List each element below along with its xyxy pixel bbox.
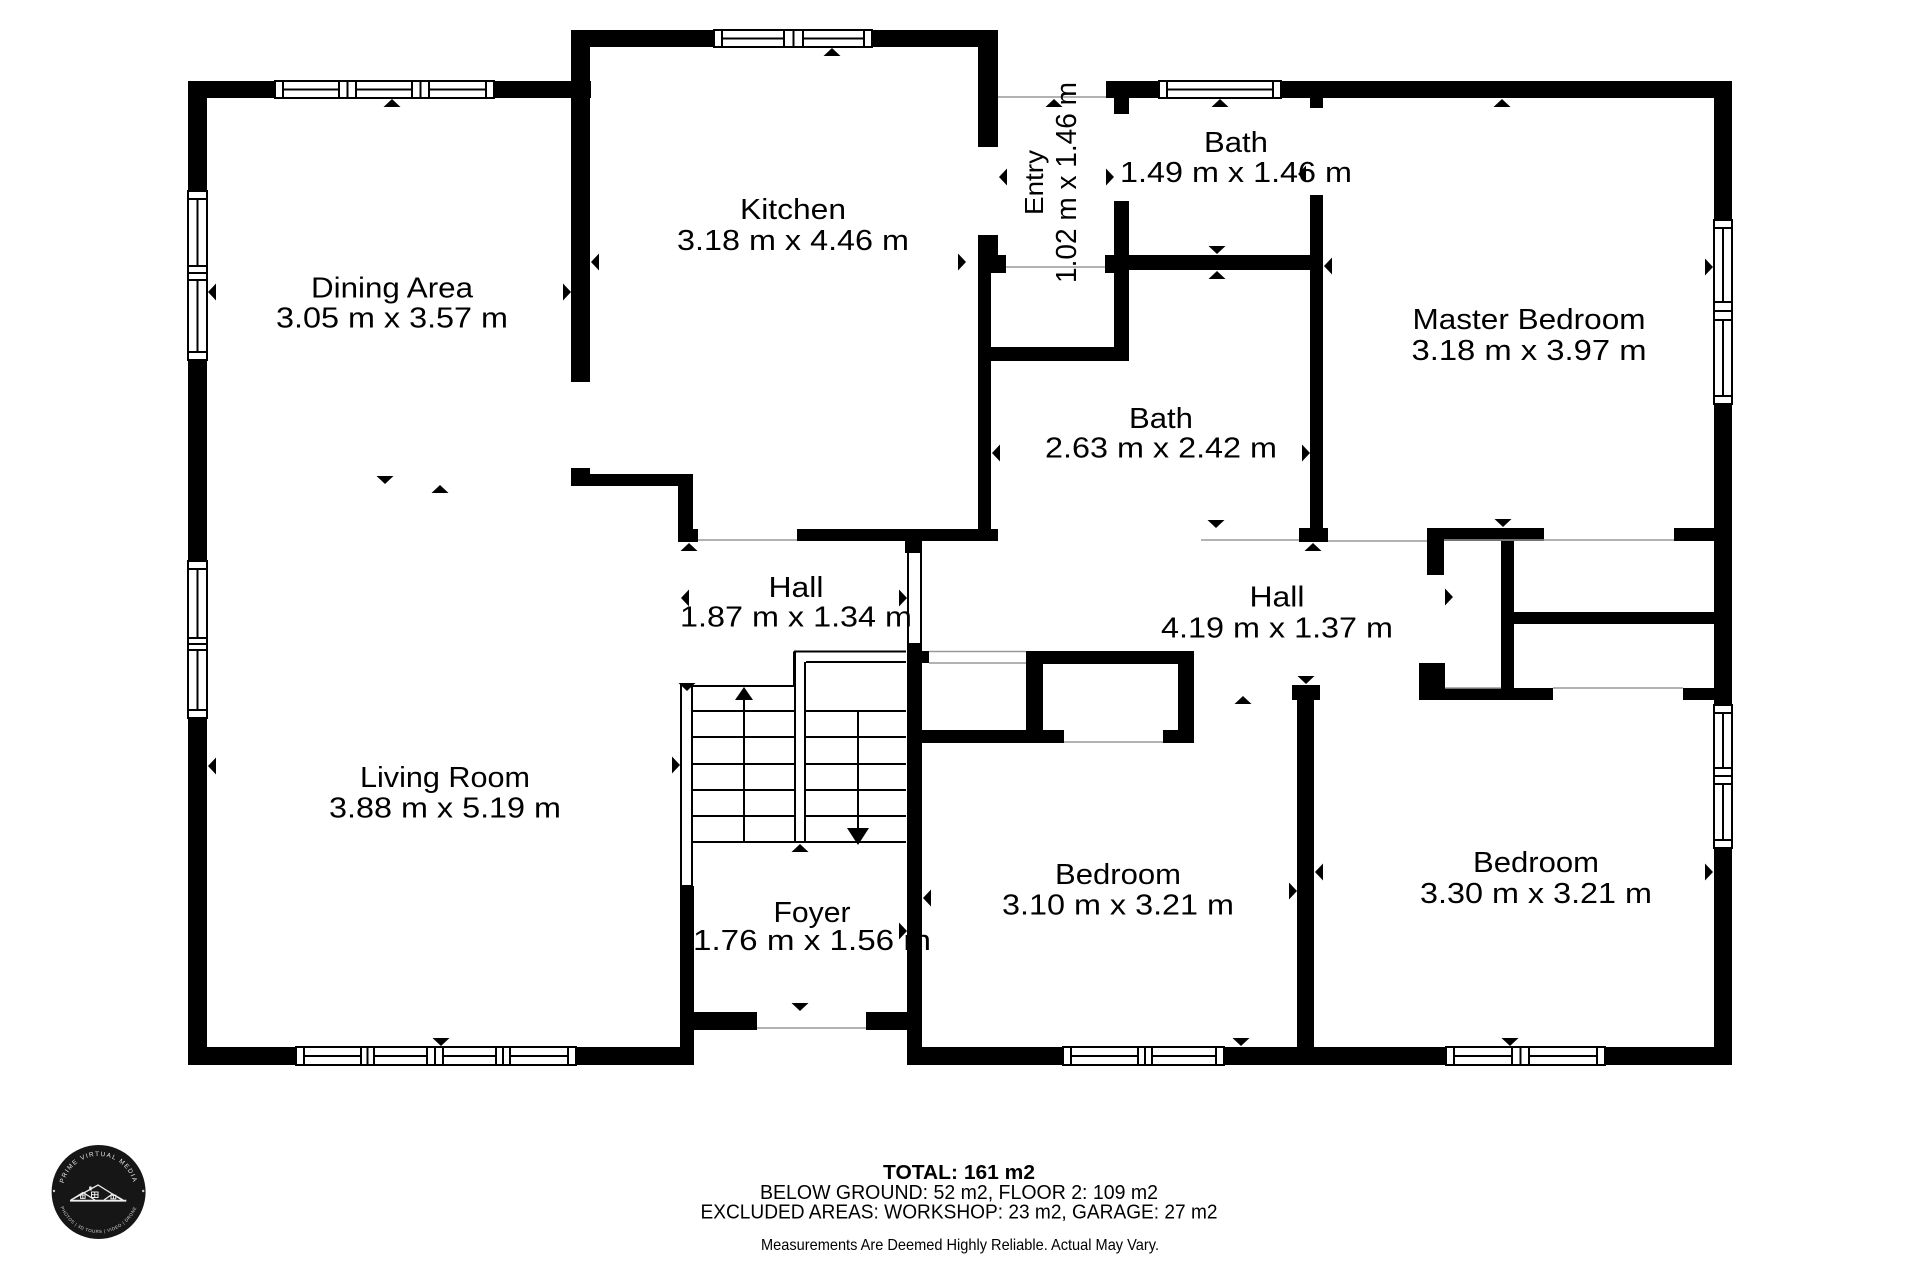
svg-text:TOTAL: 161 m2: TOTAL: 161 m2 [883, 1162, 1035, 1184]
svg-text:Bedroom: Bedroom [1055, 859, 1181, 891]
svg-text:3.88 m x 5.19 m: 3.88 m x 5.19 m [329, 793, 561, 825]
svg-text:Master Bedroom: Master Bedroom [1413, 304, 1646, 336]
svg-text:Dining Area: Dining Area [311, 273, 474, 305]
svg-text:1.76 m x 1.56 m: 1.76 m x 1.56 m [693, 925, 931, 957]
svg-text:EXCLUDED AREAS: WORKSHOP: 23 m: EXCLUDED AREAS: WORKSHOP: 23 m2, GARAGE:… [701, 1202, 1218, 1224]
svg-text:Bath: Bath [1129, 403, 1193, 435]
svg-text:Entry: Entry [1019, 150, 1049, 215]
svg-text:3.18 m x 3.97 m: 3.18 m x 3.97 m [1412, 335, 1647, 367]
svg-text:Bedroom: Bedroom [1473, 847, 1599, 879]
svg-text:1.49 m x 1.46 m: 1.49 m x 1.46 m [1120, 157, 1352, 189]
svg-text:Living Room: Living Room [360, 762, 530, 794]
svg-text:Kitchen: Kitchen [740, 194, 846, 226]
svg-text:3.18 m x 4.46 m: 3.18 m x 4.46 m [677, 225, 909, 257]
svg-text:Measurements Are Deemed Highly: Measurements Are Deemed Highly Reliable.… [761, 1237, 1159, 1254]
svg-text:Hall: Hall [769, 572, 824, 604]
svg-text:1.87 m x 1.34 m: 1.87 m x 1.34 m [680, 602, 912, 634]
svg-text:1.02 m x 1.46 m: 1.02 m x 1.46 m [1051, 82, 1083, 283]
svg-text:Bath: Bath [1204, 127, 1268, 159]
svg-text:2.63 m x 2.42 m: 2.63 m x 2.42 m [1045, 433, 1277, 465]
svg-text:4.19 m x 1.37 m: 4.19 m x 1.37 m [1161, 613, 1393, 645]
svg-text:Hall: Hall [1250, 582, 1305, 614]
svg-text:3.30 m x 3.21 m: 3.30 m x 3.21 m [1420, 878, 1652, 910]
svg-text:3.10 m x 3.21 m: 3.10 m x 3.21 m [1002, 890, 1234, 922]
svg-text:3.05 m x 3.57 m: 3.05 m x 3.57 m [276, 303, 508, 335]
